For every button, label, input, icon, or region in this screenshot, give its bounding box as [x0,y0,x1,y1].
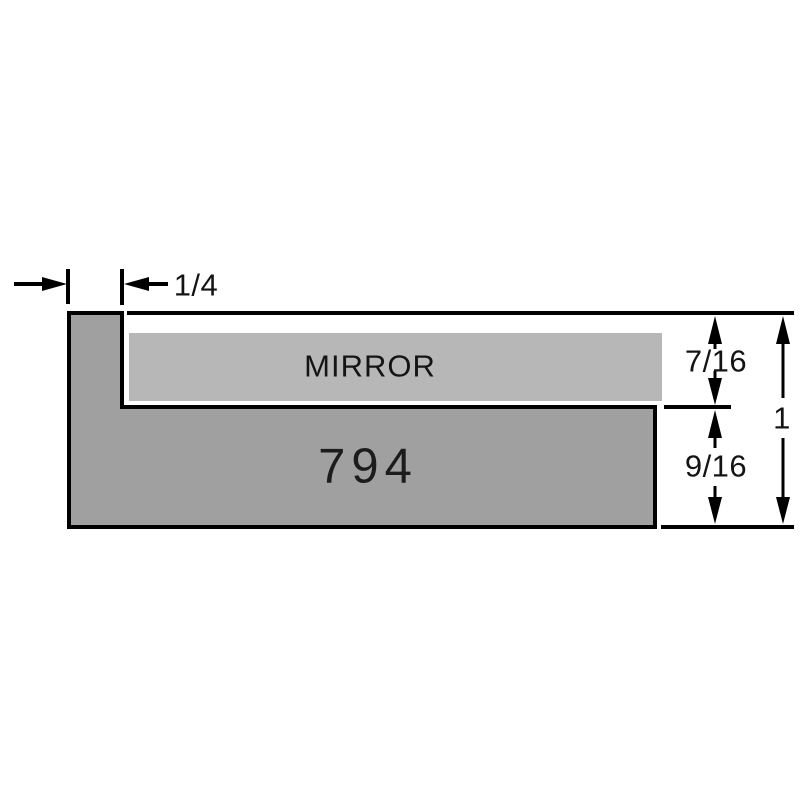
mirror-label: MIRROR [304,351,436,382]
profile-drawing [0,0,800,800]
lip-right-arrowhead-icon [124,277,149,291]
overall-up-arrowhead-icon [776,316,790,344]
rabbet-down-arrowhead-icon [708,378,722,405]
lower-height-dimension-label: 9/16 [685,451,747,482]
rabbet-up-arrowhead-icon [708,316,722,344]
lower-down-arrowhead-icon [708,497,722,524]
overall-height-dimension-label: 1 [773,403,791,434]
lower-up-arrowhead-icon [708,410,722,438]
profile-number-label: 794 [318,443,418,492]
rabbet-depth-dimension-label: 7/16 [685,346,747,377]
lip-left-arrowhead-icon [42,277,67,291]
profile-diagram: 1/4 MIRROR 794 7/16 9/16 1 [0,0,800,800]
overall-down-arrowhead-icon [776,497,790,524]
lip-width-dimension-label: 1/4 [174,270,219,301]
